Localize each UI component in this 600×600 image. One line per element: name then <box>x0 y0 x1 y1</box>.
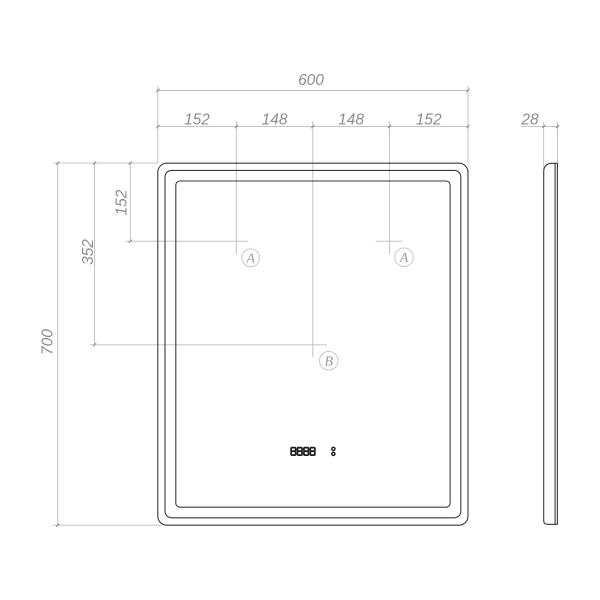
svg-text:352: 352 <box>80 239 97 265</box>
svg-text:A: A <box>399 251 409 266</box>
svg-text:152: 152 <box>114 189 131 215</box>
svg-text:148: 148 <box>262 111 288 128</box>
svg-text:152: 152 <box>184 111 210 128</box>
svg-text:B: B <box>325 355 334 370</box>
svg-text:28: 28 <box>520 111 539 128</box>
svg-text:152: 152 <box>416 111 442 128</box>
svg-text:700: 700 <box>40 329 57 355</box>
svg-text:A: A <box>245 252 255 267</box>
svg-text:148: 148 <box>338 111 364 128</box>
svg-text:600: 600 <box>298 72 324 89</box>
